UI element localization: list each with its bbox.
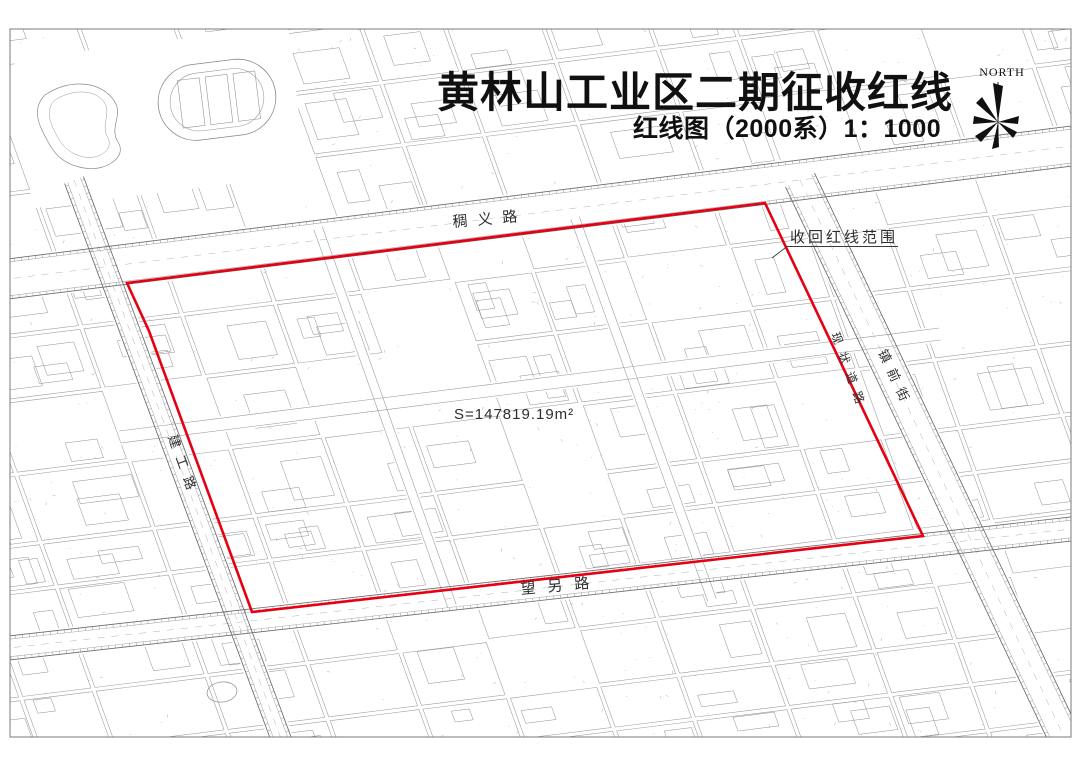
map-title: 黄林山工业区二期征收红线: [437, 69, 953, 116]
map-subtitle: 红线图（2000系）1：1000: [633, 114, 941, 143]
drawing-page: 收回红线范围 S=147819.19m² 稠义路 望另路 镇前街 建工路 现状道…: [0, 0, 1080, 763]
area-label: S=147819.19m²: [454, 406, 574, 423]
map-canvas: 收回红线范围 S=147819.19m² 稠义路 望另路 镇前街 建工路 现状道…: [0, 0, 1080, 763]
callout-label: 收回红线范围: [790, 229, 898, 246]
north-label: NORTH: [979, 65, 1025, 79]
